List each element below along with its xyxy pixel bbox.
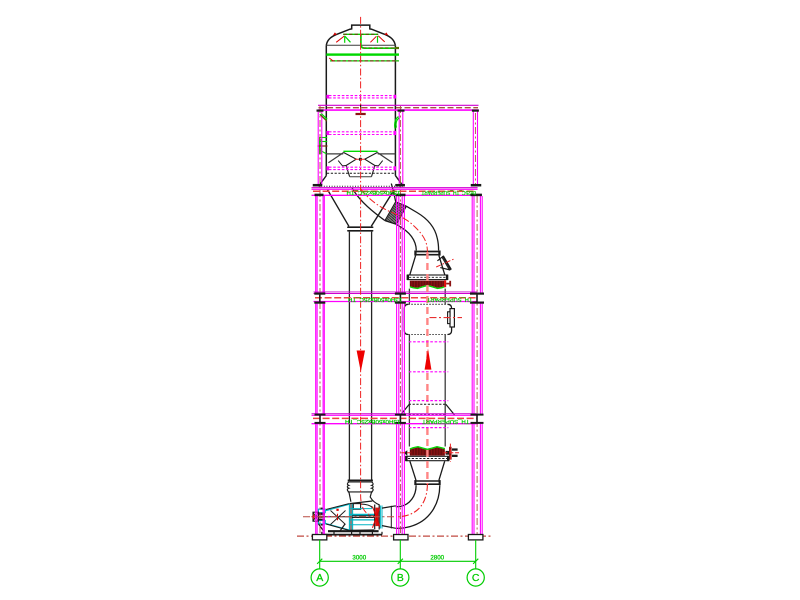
svg-text:TH_SUPERPART: TH_SUPERPART	[422, 418, 470, 424]
svg-text:13H0x50Bx25C_TH: 13H0x50Bx25C_TH	[347, 189, 401, 195]
svg-text:2800: 2800	[430, 555, 444, 562]
svg-text:A: A	[316, 572, 323, 584]
svg-text:13H0x50Bx25C_TH: 13H0x50Bx25C_TH	[345, 418, 401, 424]
svg-text:B: B	[397, 572, 404, 584]
svg-text:13H0x50Bx25C_TH: 13H0x50Bx25C_TH	[348, 296, 402, 302]
svg-text:C: C	[472, 572, 480, 584]
svg-text:TH_SUPERPART: TH_SUPERPART	[427, 296, 473, 302]
svg-text:0x25C_TH_SUPERPART: 0x25C_TH_SUPERPART	[421, 189, 476, 195]
svg-text:3000: 3000	[352, 555, 366, 562]
